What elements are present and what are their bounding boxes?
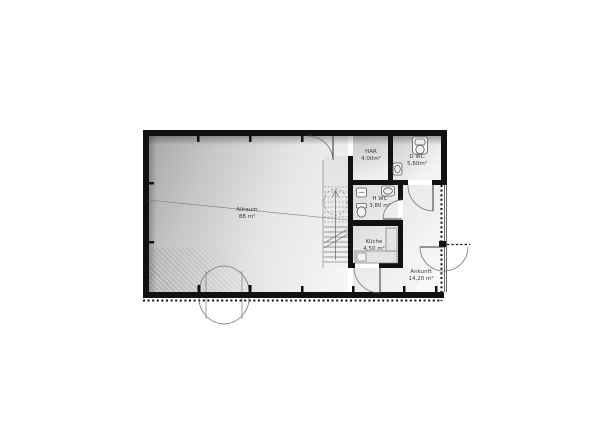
door-har xyxy=(308,136,333,160)
sink-icon-hwc xyxy=(382,186,395,196)
facade-post xyxy=(439,241,446,247)
room-area: 5,60m² xyxy=(407,161,427,168)
room-name: D WC xyxy=(407,154,427,161)
room-label-allraum: Allraum 88 m² xyxy=(236,207,257,221)
sink-icon-dwc xyxy=(393,163,402,175)
room-label-ankunft: Ankunft 14,20 m² xyxy=(408,269,433,283)
door-dwc xyxy=(408,185,433,211)
toilet-icon-dwc xyxy=(413,137,428,154)
door-main-double-swing xyxy=(199,266,249,324)
stair-walk-line xyxy=(333,191,339,261)
room-area: 88 m² xyxy=(236,214,257,221)
room-name: Ankunft xyxy=(408,269,433,276)
door-kueche-passage xyxy=(354,268,380,293)
room-name: Küche xyxy=(363,239,385,246)
plan-linework xyxy=(0,0,600,424)
room-area: 3,80 m² xyxy=(369,203,391,210)
room-label-har: HAR 4,00m² xyxy=(361,149,381,163)
room-area: 4,50 m² xyxy=(363,246,385,253)
floor-plan: Allraum 88 m² HAR 4,00m² D WC 5,60m² H W… xyxy=(0,0,600,424)
staircase xyxy=(323,160,348,268)
window-ticks xyxy=(145,136,438,294)
room-label-dwc: D WC 5,60m² xyxy=(407,154,427,168)
urinal-icon-hwc xyxy=(357,188,367,197)
room-area: 14,20 m² xyxy=(408,276,433,283)
room-label-hwc: H WC 3,80 m² xyxy=(369,196,391,210)
room-area: 4,00m² xyxy=(361,156,381,163)
overhang-dotted-lines xyxy=(143,185,470,301)
toilet-icon-hwc xyxy=(357,204,367,218)
room-name: Allraum xyxy=(236,207,257,214)
door-entry-facade xyxy=(420,247,468,271)
room-name: HAR xyxy=(361,149,381,156)
glass-facade xyxy=(445,185,447,292)
room-label-kueche: Küche 4,50 m² xyxy=(363,239,385,253)
room-name: H WC xyxy=(369,196,391,203)
